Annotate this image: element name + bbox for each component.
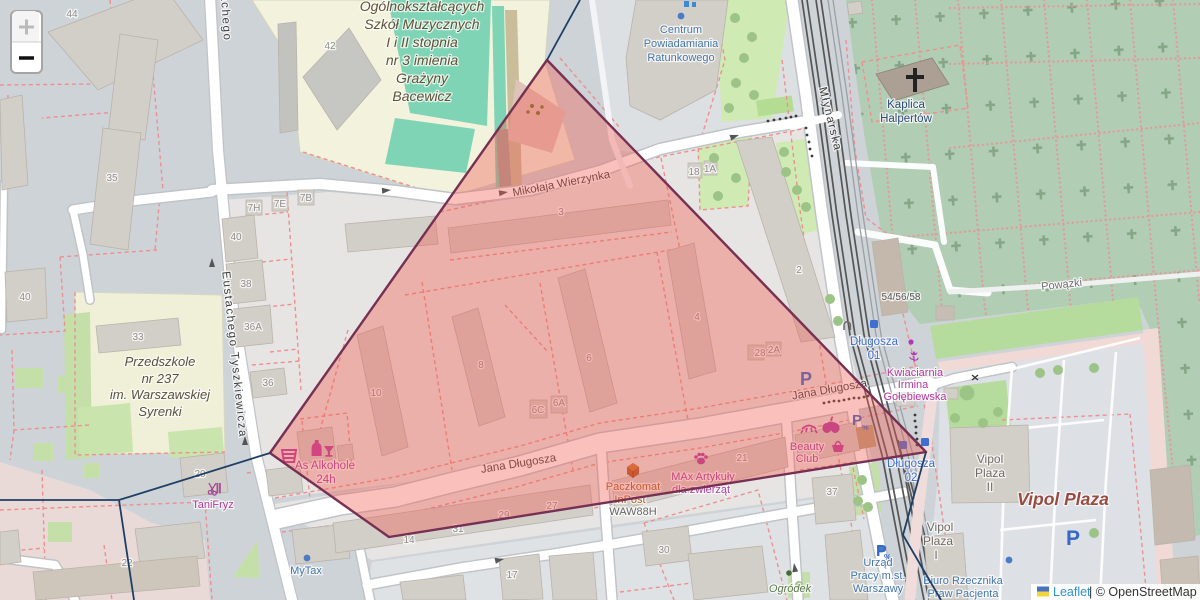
- svg-text:Bacewicz: Bacewicz: [392, 88, 451, 104]
- svg-text:42: 42: [324, 41, 336, 52]
- svg-text:Pracy m.st.: Pracy m.st.: [850, 570, 905, 582]
- svg-text:Biuro Rzecznika: Biuro Rzecznika: [923, 575, 1003, 587]
- svg-text:Powiadamiania: Powiadamiania: [644, 38, 719, 50]
- svg-text:Centrum: Centrum: [660, 24, 702, 36]
- svg-text:01: 01: [868, 350, 881, 362]
- svg-text:Urząd: Urząd: [863, 557, 892, 569]
- svg-text:7H: 7H: [248, 203, 261, 214]
- svg-text:36: 36: [262, 378, 274, 389]
- svg-text:P: P: [1066, 527, 1080, 550]
- svg-text:II: II: [987, 480, 994, 494]
- svg-text:Leaflet: Leaflet: [1053, 585, 1091, 599]
- svg-text:02: 02: [905, 472, 918, 484]
- svg-text:Ogródek: Ogródek: [769, 583, 812, 595]
- svg-text:35: 35: [106, 173, 118, 184]
- svg-text:1A: 1A: [704, 164, 717, 175]
- svg-text:Vipol Plaza: Vipol Plaza: [1017, 489, 1109, 509]
- svg-text:Kwiaciarnia: Kwiaciarnia: [887, 367, 944, 379]
- svg-text:Vipol: Vipol: [927, 520, 953, 534]
- svg-text:2: 2: [796, 265, 802, 276]
- svg-text:44: 44: [66, 9, 78, 20]
- svg-text:Syrenki: Syrenki: [138, 404, 182, 419]
- svg-text:Szkół Muzycznych: Szkół Muzycznych: [364, 16, 479, 32]
- svg-text:Przedszkole: Przedszkole: [125, 354, 196, 369]
- svg-text:Plaza: Plaza: [975, 466, 1005, 480]
- svg-text:Ratunkowego: Ratunkowego: [647, 52, 714, 64]
- svg-text:Plaza: Plaza: [923, 534, 953, 548]
- svg-text:nr 237: nr 237: [142, 371, 180, 386]
- svg-text:I i II stopnia: I i II stopnia: [386, 34, 458, 50]
- svg-text:7E: 7E: [274, 199, 287, 210]
- svg-text:40: 40: [230, 232, 242, 243]
- svg-text:Grażyny: Grażyny: [396, 70, 449, 86]
- svg-text:Warszawy: Warszawy: [853, 583, 904, 595]
- svg-text:37: 37: [826, 487, 838, 498]
- svg-text:30: 30: [658, 545, 670, 556]
- svg-text:Długosza: Długosza: [887, 458, 936, 470]
- svg-text:Vipol: Vipol: [977, 452, 1003, 466]
- svg-text:WAW88H: WAW88H: [609, 506, 657, 518]
- svg-text:nr 3 imienia: nr 3 imienia: [386, 52, 459, 68]
- svg-text:7B: 7B: [300, 193, 313, 204]
- svg-text:I: I: [934, 548, 937, 562]
- svg-text:Gołębiewska: Gołębiewska: [884, 391, 948, 403]
- svg-text:| © OpenStreetMap: | © OpenStreetMap: [1089, 585, 1197, 599]
- svg-text:MyTax: MyTax: [290, 565, 322, 577]
- svg-text:Kaplica: Kaplica: [887, 99, 925, 111]
- svg-text:Halpertów: Halpertów: [880, 113, 932, 125]
- svg-text:36A: 36A: [244, 322, 262, 333]
- svg-text:18: 18: [688, 167, 700, 178]
- svg-text:TaniFryz: TaniFryz: [192, 499, 234, 511]
- svg-text:Ogólnokształcących: Ogólnokształcących: [360, 0, 485, 14]
- svg-text:38: 38: [240, 279, 252, 290]
- svg-text:40: 40: [19, 292, 31, 303]
- svg-text:17: 17: [506, 570, 518, 581]
- svg-text:Długosza: Długosza: [850, 336, 899, 348]
- svg-text:33: 33: [132, 332, 144, 343]
- svg-text:54/56/58: 54/56/58: [882, 292, 921, 303]
- svg-text:Irmina: Irmina: [898, 379, 929, 391]
- svg-text:14: 14: [403, 535, 415, 546]
- svg-text:im. Warszawskiej: im. Warszawskiej: [110, 387, 211, 402]
